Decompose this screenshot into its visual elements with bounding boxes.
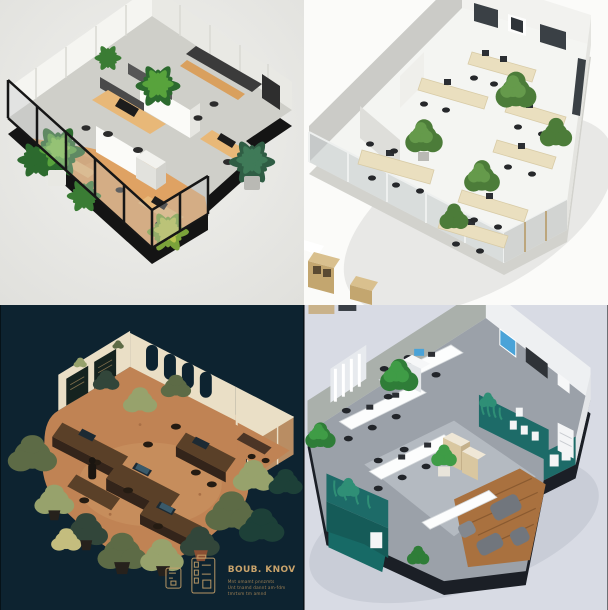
panel-bottom-right-art xyxy=(304,305,608,610)
caption-heading: BOUB. KNOV xyxy=(228,565,296,575)
image-grid: BOUB. KNOV Mnt omamt pnnzmts Unt tnamd d… xyxy=(0,0,608,610)
caption-line-2: Unt tnamd dannt am-fdm xyxy=(228,585,286,590)
door xyxy=(370,532,382,548)
caption-line-3: tmrtxm tm amnd xyxy=(228,591,267,596)
panel-top-left xyxy=(0,0,304,305)
panel-top-right xyxy=(304,0,608,305)
panel-bottom-right xyxy=(304,305,608,610)
panel-top-left-art xyxy=(0,0,304,305)
caption-line-1: Mnt omamt pnnzmts xyxy=(228,579,275,584)
panel-bottom-left-art: BOUB. KNOV Mnt omamt pnnzmts Unt tnamd d… xyxy=(0,305,304,610)
planter xyxy=(438,466,450,476)
planter xyxy=(48,170,66,186)
person-figure xyxy=(88,457,96,479)
panel-top-right-art xyxy=(304,0,608,305)
panel-bottom-left: BOUB. KNOV Mnt omamt pnnzmts Unt tnamd d… xyxy=(0,305,304,610)
